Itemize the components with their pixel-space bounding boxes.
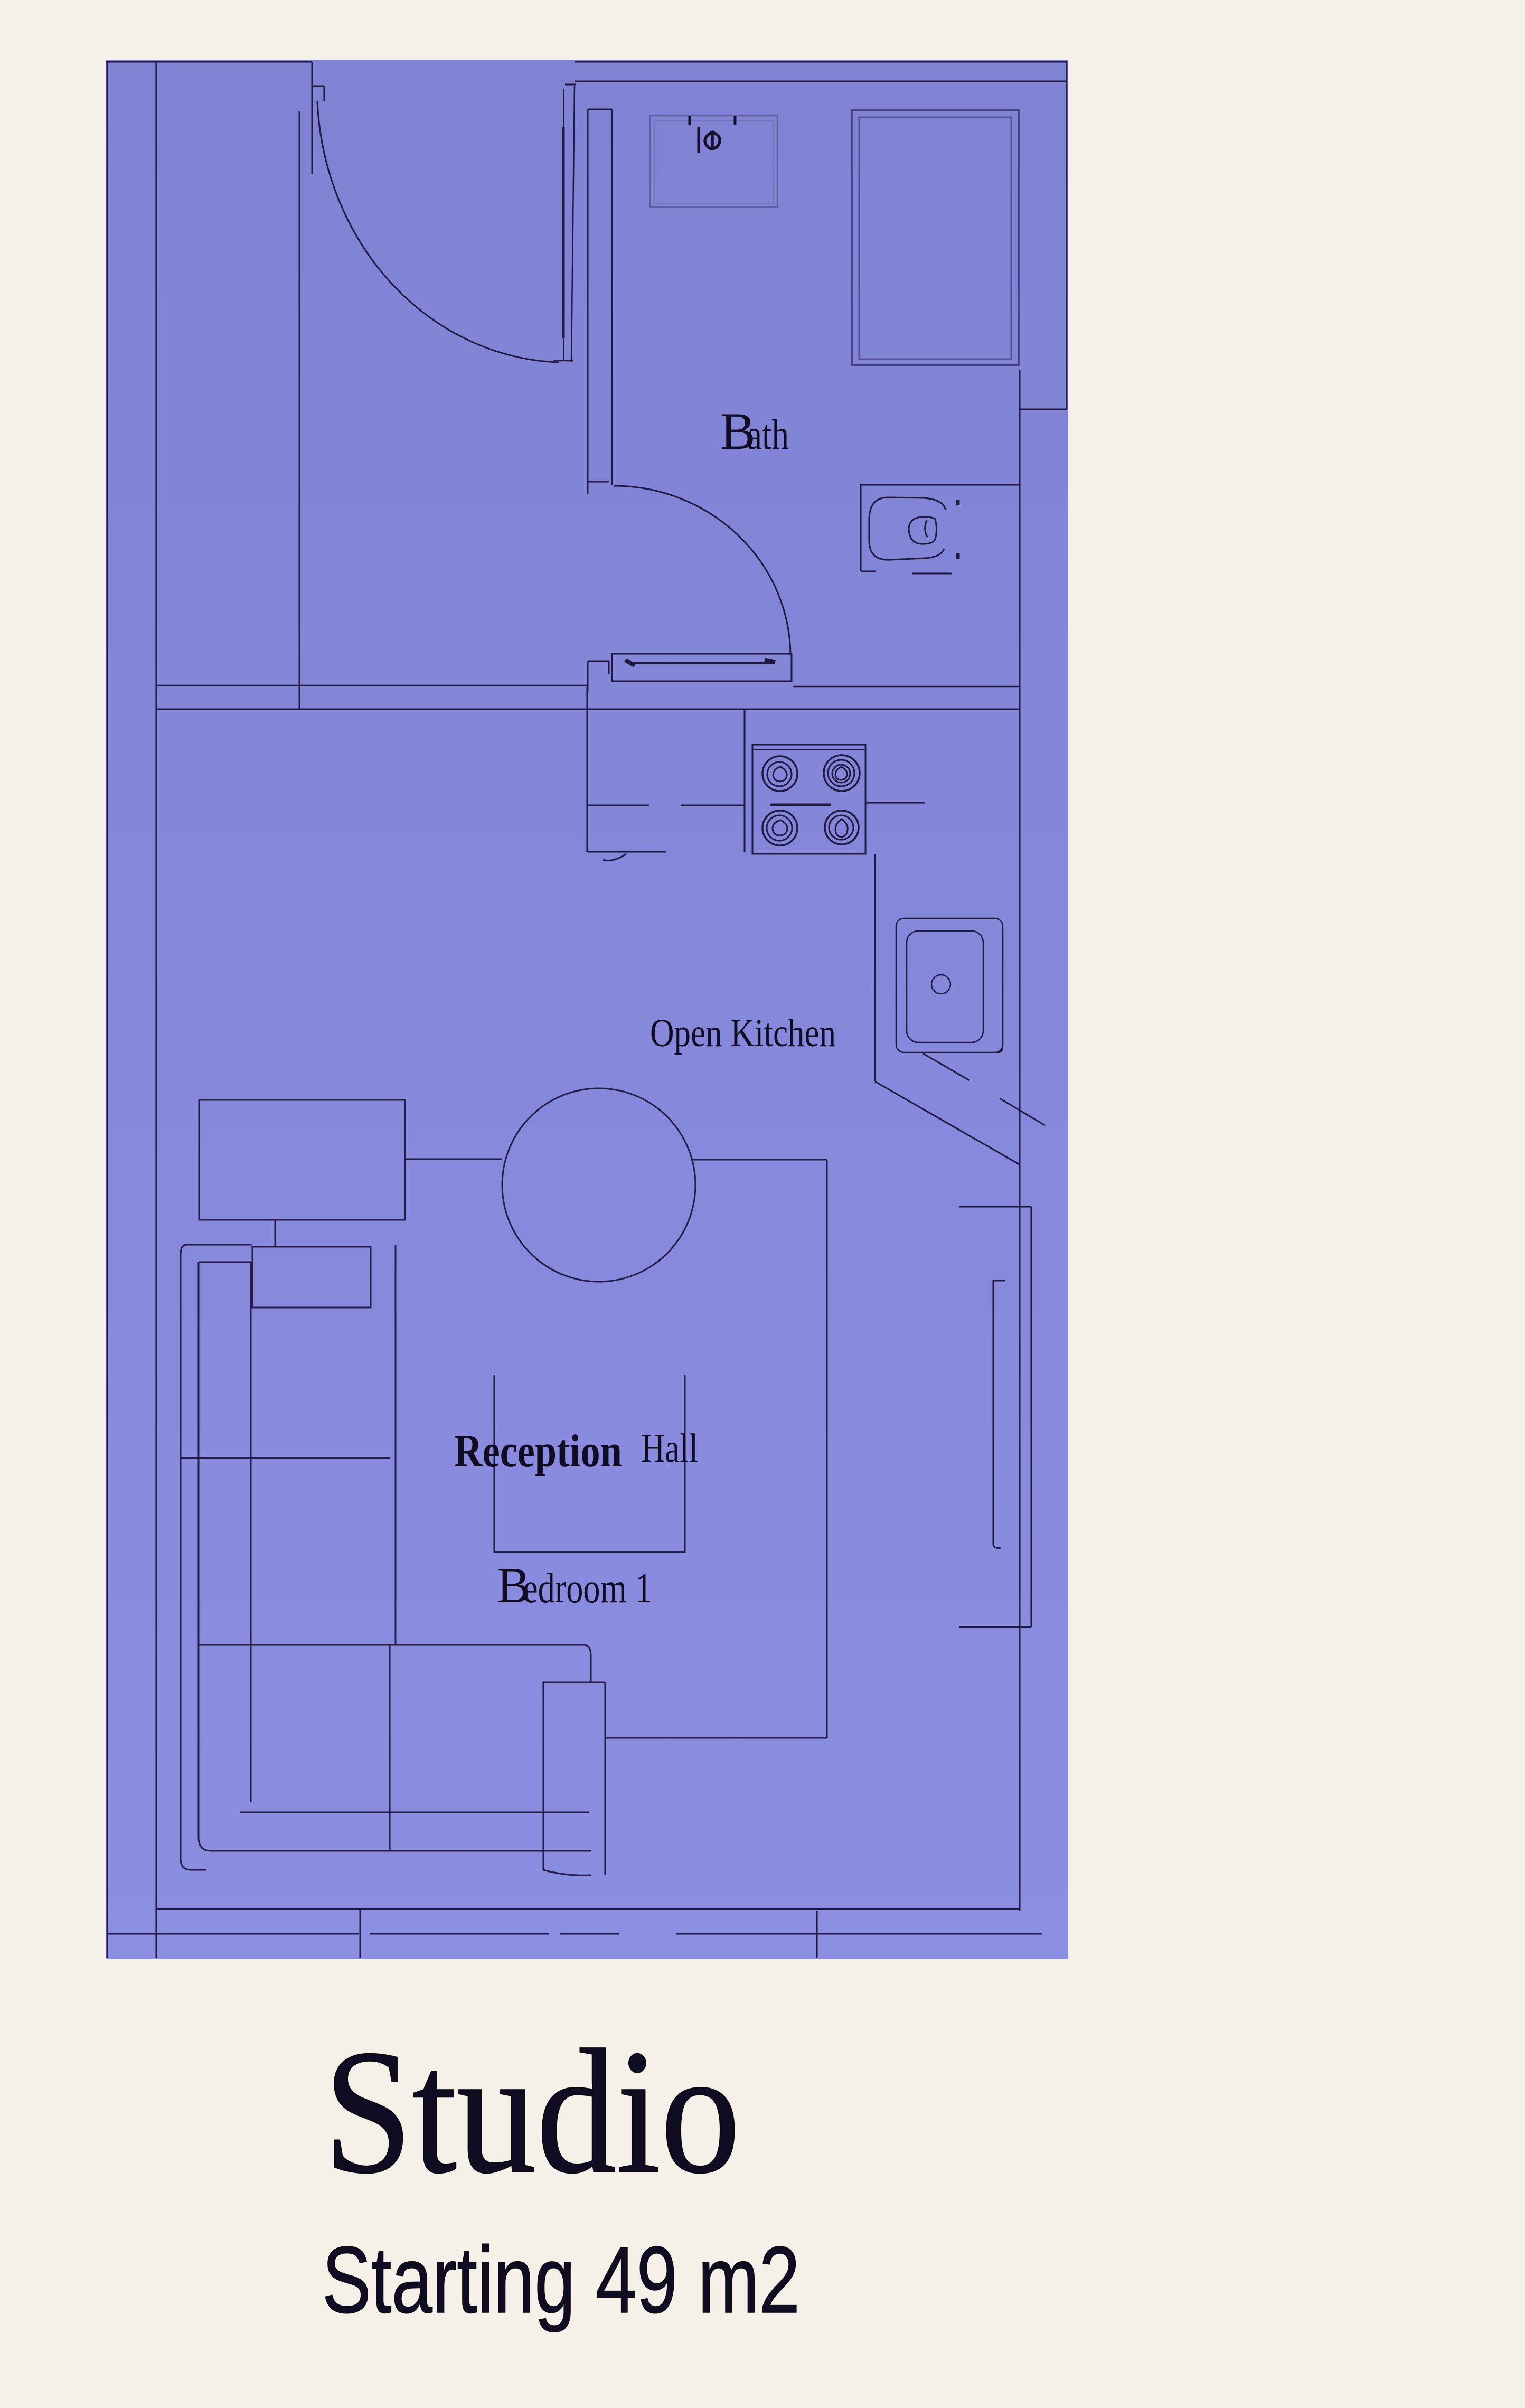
- svg-text:edroom 1: edroom 1: [523, 1565, 652, 1612]
- svg-text:ath: ath: [747, 412, 789, 458]
- svg-text:Reception: Reception: [454, 1426, 622, 1477]
- svg-text:Open Kitchen: Open Kitchen: [650, 1011, 836, 1055]
- svg-text:Starting 49 m2: Starting 49 m2: [322, 2227, 800, 2332]
- svg-text:Studio: Studio: [324, 2013, 740, 2210]
- svg-text:Hall: Hall: [641, 1425, 698, 1471]
